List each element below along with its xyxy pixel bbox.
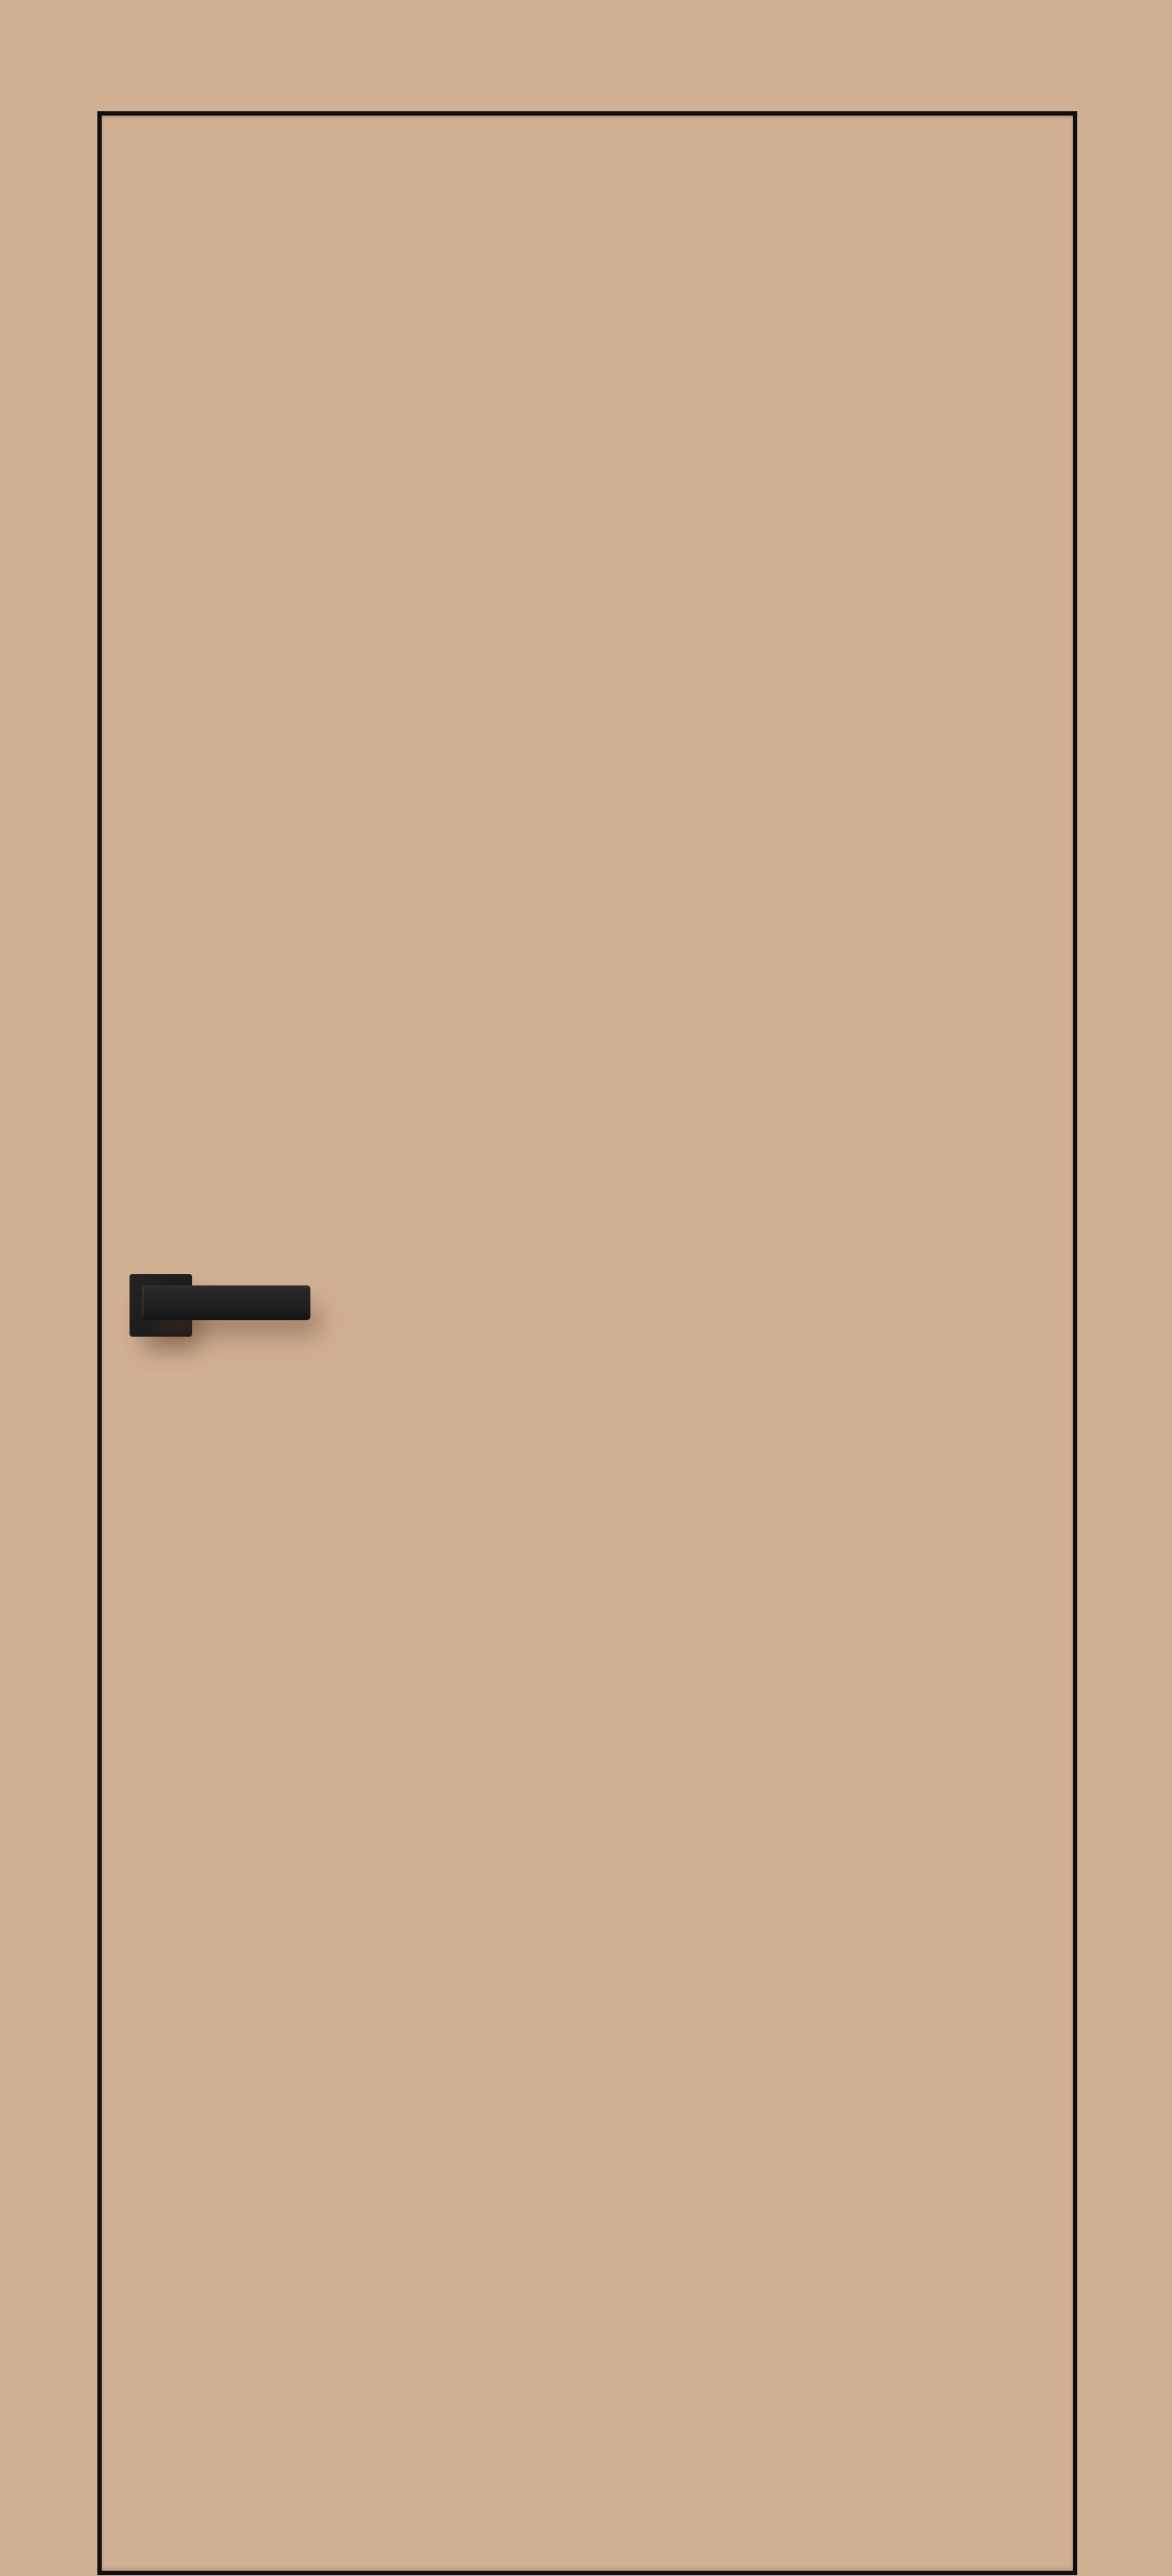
- door-leaf: [97, 111, 1077, 2575]
- wall-backdrop: [0, 0, 1172, 2576]
- handle-rosette: [130, 1274, 192, 1337]
- handle-lever-icon: [142, 1285, 310, 1320]
- door-handle: [102, 116, 1073, 2571]
